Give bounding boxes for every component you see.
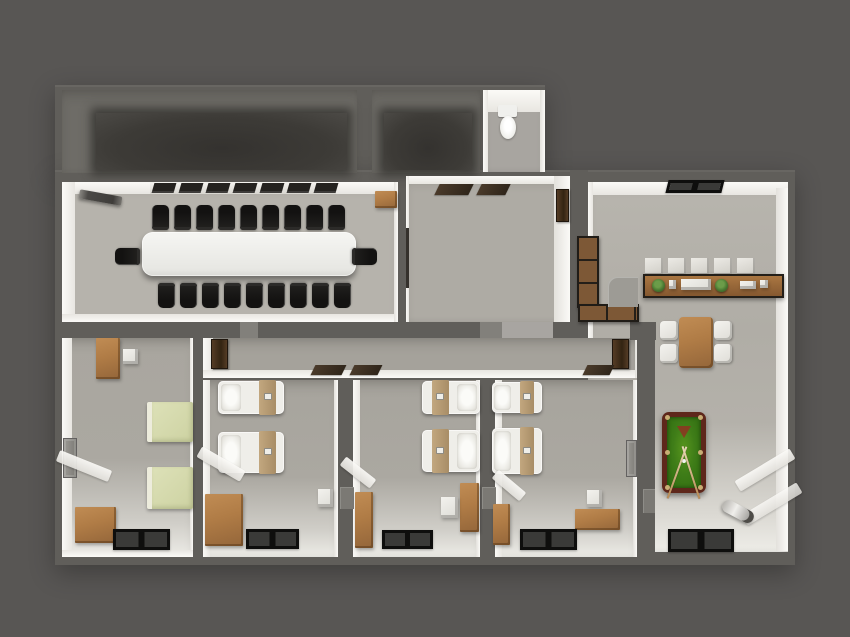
window-vent-slat: [152, 183, 177, 193]
bedroom-2-nightstand: [441, 497, 458, 518]
cubby-shelf: [645, 258, 755, 275]
office-desk: [96, 338, 120, 379]
bed-accessory: [264, 448, 272, 455]
plant-pot: [652, 279, 665, 292]
office-chair: [180, 283, 197, 308]
office-chair: [152, 205, 169, 230]
plant-pot: [715, 279, 728, 292]
dining-chair: [714, 321, 732, 340]
bedroom-3-dresser: [575, 509, 620, 530]
office-chair: [240, 205, 257, 230]
office-chair: [224, 283, 241, 308]
office-chair: [174, 205, 191, 230]
bedroom-2-wall-stub: [340, 487, 354, 509]
wall-shelf-box: [375, 191, 397, 208]
bedroom-2-cabinet-west: [355, 492, 373, 548]
window-vent-strip: [150, 182, 336, 194]
dining-chair: [660, 321, 678, 340]
bedroom-3-wall-radiator: [626, 440, 637, 477]
dining-table: [679, 317, 713, 368]
corridor-mat-3: [583, 365, 615, 375]
office-chair: [268, 283, 285, 308]
bedroom-3-doormat: [520, 529, 577, 550]
corridor-open-door-west: [211, 339, 228, 369]
conference-table: [142, 232, 356, 276]
bed-accessory: [436, 447, 444, 454]
office-chair: [328, 205, 345, 230]
wardrobe-vertical: [577, 236, 599, 308]
office-chair: [218, 205, 235, 230]
cubby-box: [668, 258, 686, 275]
chrome-radiator: [720, 498, 756, 525]
gray-counter-block: [608, 277, 638, 307]
counter-tray: [681, 279, 711, 290]
bedroom-1-doormat: [246, 529, 299, 549]
bed: [218, 381, 284, 414]
corridor-mat-1: [311, 365, 347, 375]
counter-papers: [740, 281, 756, 289]
office-chair: [262, 205, 279, 230]
common-room-wall-stub: [643, 489, 655, 513]
green-bed-1: [147, 402, 193, 442]
office-chair: [284, 205, 301, 230]
bed: [492, 428, 542, 474]
pool-pocket: [698, 415, 703, 420]
bedroom-3-cabinet: [493, 504, 510, 545]
office-chair: [290, 283, 307, 308]
office-chair: [306, 205, 323, 230]
entry-mat-1: [434, 184, 473, 195]
bed-pillow: [457, 384, 477, 411]
office-chair: [312, 283, 329, 308]
office-chair: [158, 283, 175, 308]
sideboard-counter: [643, 274, 784, 298]
office-chair: [246, 283, 263, 308]
bed-accessory: [523, 447, 531, 454]
dining-chair: [714, 344, 732, 363]
window-vent-slat: [260, 183, 285, 193]
office-chair-end-left: [115, 248, 140, 265]
entry-mat-2: [476, 184, 510, 195]
window-vent-slat: [287, 183, 312, 193]
bed: [492, 382, 542, 413]
bedroom-2-doormat: [382, 530, 433, 549]
projector-screen: [79, 189, 123, 205]
billiard-ball-rack: [677, 426, 691, 438]
window-vent-slat: [179, 183, 204, 193]
bedroom-1-cabinet: [205, 494, 243, 546]
cubby-box: [691, 258, 709, 275]
pool-pocket: [665, 450, 670, 455]
office-chair: [202, 283, 219, 308]
pool-pocket: [698, 485, 703, 490]
bed-pillow: [221, 384, 241, 411]
office-chair-cube: [123, 349, 138, 364]
pool-pocket: [665, 415, 670, 420]
cubby-box: [714, 258, 732, 275]
bedroom-2-wall-ledge: [340, 456, 377, 488]
dining-chair: [660, 344, 678, 363]
office-cabinet: [75, 507, 116, 543]
conference-chair-row-top: [152, 205, 352, 231]
billiard-table: [662, 412, 706, 493]
common-room-wall-ledge-1: [734, 448, 795, 491]
conference-chair-row-bottom: [158, 283, 358, 309]
office-chair: [196, 205, 213, 230]
bed: [422, 430, 480, 472]
green-bed-2: [147, 467, 193, 509]
floor-plan-render: [0, 0, 850, 637]
bed-pillow: [457, 433, 477, 469]
counter-jar: [669, 280, 676, 289]
cubby-box: [645, 258, 663, 275]
window-vent-slat: [233, 183, 258, 193]
bed-pillow: [494, 385, 511, 410]
entry-open-door-leaf: [406, 228, 409, 288]
bedroom-2-cabinet-tall: [460, 483, 479, 532]
bedroom-1-nightstand: [318, 489, 333, 507]
furniture-layer: [0, 0, 850, 637]
pool-pocket: [698, 450, 703, 455]
bedroom-3-nightstand: [587, 490, 602, 507]
office-chair: [334, 283, 351, 308]
entry-wall-door: [556, 189, 569, 222]
window-vent-slat: [314, 183, 339, 193]
bed-pillow: [494, 431, 511, 471]
bed: [422, 381, 480, 414]
common-room-doormat-top: [665, 180, 724, 193]
counter-box: [760, 280, 768, 288]
bed-accessory: [436, 393, 444, 400]
office-chair-end-right: [352, 248, 377, 265]
bed-accessory: [264, 393, 272, 400]
office-doormat: [113, 529, 170, 550]
common-room-doormat-bottom: [668, 529, 734, 552]
cubby-box: [737, 258, 755, 275]
bed-accessory: [523, 393, 531, 400]
window-vent-slat: [206, 183, 231, 193]
corridor-mat-2: [350, 365, 383, 375]
